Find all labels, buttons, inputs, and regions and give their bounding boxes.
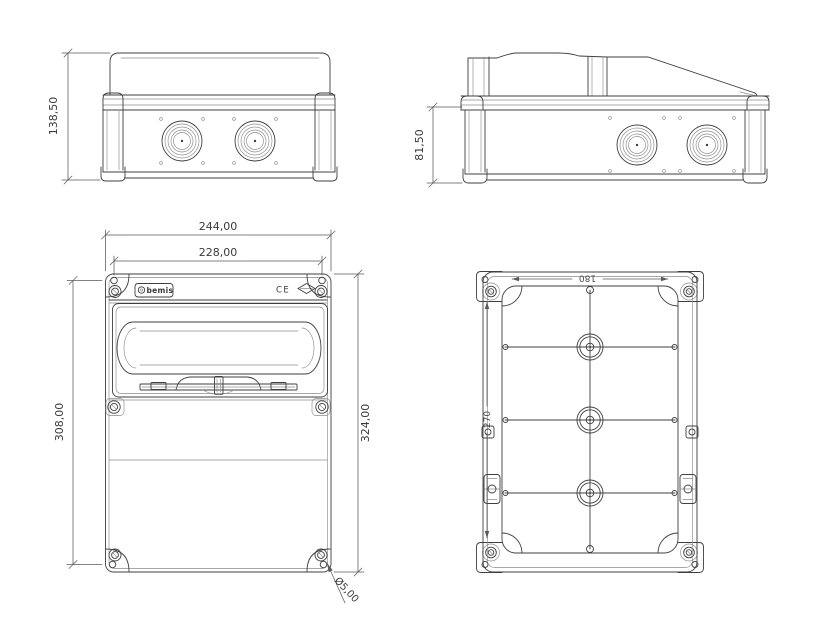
dim-label-height-outer: 324,00: [359, 404, 372, 443]
brand-label: bemis: [147, 286, 174, 295]
dim-label-side-height: 138,50: [47, 97, 60, 136]
dim-label-width-outer: 244,00: [199, 220, 238, 233]
technical-drawing-sheet: 138,50: [0, 0, 825, 625]
dim-label-inner-width: 180: [579, 273, 596, 283]
dim-label-inner-height: 270: [483, 411, 493, 428]
drawing-canvas: 138,50: [0, 0, 825, 625]
canvas-background: [0, 0, 825, 625]
dim-label-width-mounting: 228,00: [199, 246, 238, 259]
ce-mark-label: CE: [276, 286, 290, 296]
dim-label-base-height: 81,50: [413, 129, 426, 161]
dim-label-height-mounting: 308,00: [53, 403, 66, 442]
